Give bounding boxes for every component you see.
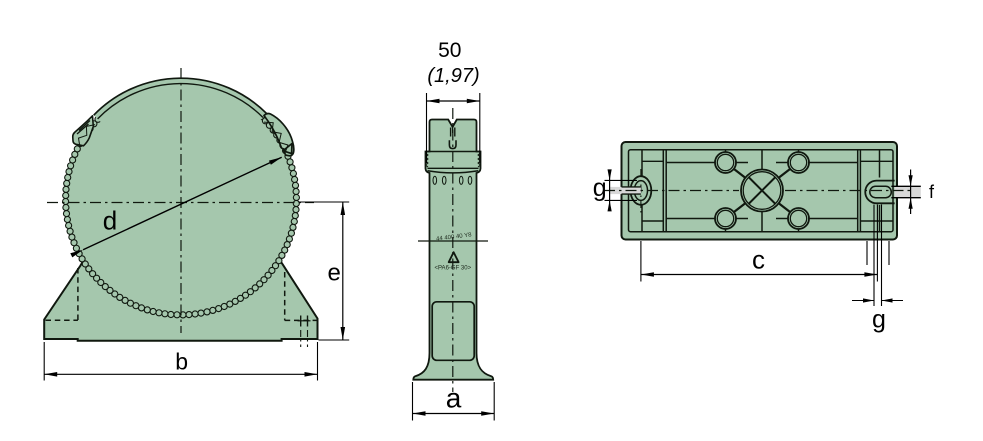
svg-text:<PA6-GF 30>: <PA6-GF 30> bbox=[435, 266, 472, 272]
svg-text:a: a bbox=[446, 383, 462, 414]
svg-text:d: d bbox=[103, 206, 117, 236]
svg-text:e: e bbox=[328, 260, 341, 287]
svg-text:b: b bbox=[175, 348, 188, 374]
svg-text:g: g bbox=[593, 174, 607, 202]
svg-text:(1,97): (1,97) bbox=[427, 65, 479, 87]
svg-text:g: g bbox=[872, 306, 886, 334]
svg-text:50: 50 bbox=[438, 39, 461, 62]
svg-text:c: c bbox=[752, 245, 765, 275]
